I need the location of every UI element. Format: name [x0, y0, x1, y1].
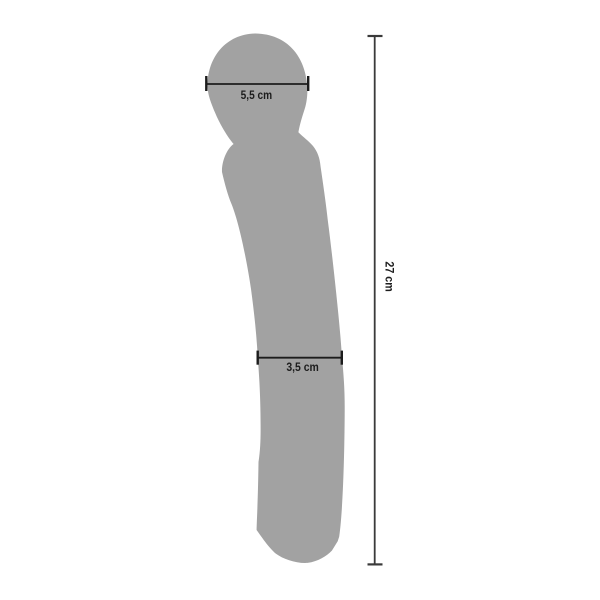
svg-text:27 cm: 27 cm [382, 261, 396, 291]
svg-text:3,5 cm: 3,5 cm [286, 362, 319, 374]
svg-text:5,5 cm: 5,5 cm [241, 90, 273, 102]
